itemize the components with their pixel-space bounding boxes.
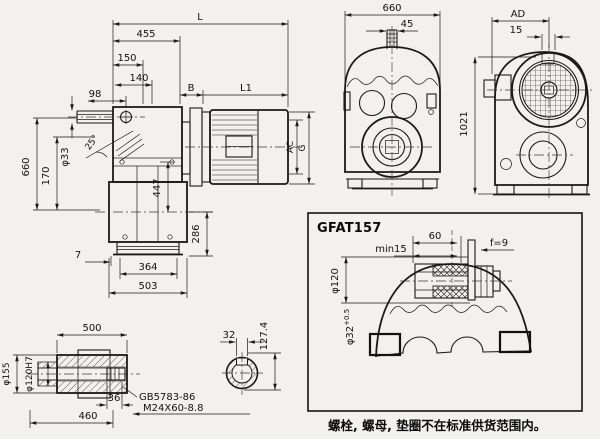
dim-G-label: G	[298, 144, 308, 151]
side-view: L 455 150 140 98 B L1 660 170 φ33 25° 44…	[21, 12, 315, 298]
end-view: AD 15 1021	[459, 9, 594, 198]
supply-note: 螺栓, 螺母, 垫圈不在标准供货范围内。	[328, 418, 546, 433]
dim-B-label: B	[188, 83, 195, 94]
bolt-standard-label: GB5783-86	[139, 392, 195, 403]
dim-32-label: 32	[223, 330, 236, 341]
front-view: 660 45	[344, 3, 440, 196]
dim-503-label: 503	[138, 281, 157, 292]
dim-60-label: 60	[429, 231, 442, 242]
dim-140-label: 140	[129, 73, 148, 84]
dim-L1-label: L1	[240, 83, 252, 94]
dim-25deg-label: 25°	[84, 133, 101, 152]
dim-1021-label: 1021	[459, 111, 470, 136]
dim-98-label: 98	[89, 89, 102, 100]
dim-min15-label: min15	[375, 244, 407, 255]
dim-AD-label: AD	[511, 9, 526, 20]
dim-1274-label: 127.4	[259, 322, 270, 351]
dim-150-label: 150	[117, 53, 136, 64]
detail-box: GFAT157 60 min15 f=9 φ120 φ32+0.5	[308, 213, 582, 411]
dim-dia32-label: φ32+0.5	[343, 309, 356, 345]
hollow-shaft-detail: 500 φ155 φ120H7 36 460 GB5783-86 M24X60-…	[2, 323, 250, 428]
dim-15-label: 15	[510, 25, 523, 36]
gear-reducer-drawing: L 455 150 140 98 B L1 660 170 φ33 25° 44…	[0, 0, 600, 439]
dim-447-label: 447	[152, 178, 163, 197]
dim-dia120-label: φ120	[330, 268, 341, 294]
dim-L-label: L	[197, 12, 203, 23]
dim-460-label: 460	[78, 411, 97, 422]
dim-364-label: 364	[138, 262, 157, 273]
shaft-section: 32 127.4	[220, 322, 281, 395]
dim-dia155-label: φ155	[2, 362, 12, 385]
dim-dia120h7-label: φ120H7	[25, 356, 35, 392]
dim-660w-label: 660	[382, 3, 401, 14]
dim-AC-label: AC	[286, 141, 296, 153]
detail-title: GFAT157	[317, 221, 382, 236]
dim-170-label: 170	[41, 166, 52, 185]
dim-dia33-label: φ33	[60, 147, 71, 166]
engineering-drawing-page: L 455 150 140 98 B L1 660 170 φ33 25° 44…	[0, 0, 600, 439]
dim-7-label: 7	[75, 250, 81, 261]
dim-286-label: 286	[191, 224, 202, 243]
dim-455-label: 455	[136, 29, 155, 40]
dim-36-label: 36	[108, 393, 121, 404]
dim-45-label: 45	[401, 19, 414, 30]
bolt-spec-label: M24X60-8.8	[143, 403, 203, 414]
dim-f9-label: f=9	[490, 238, 508, 249]
dim-500-label: 500	[82, 323, 101, 334]
dim-660v-label: 660	[21, 157, 32, 176]
